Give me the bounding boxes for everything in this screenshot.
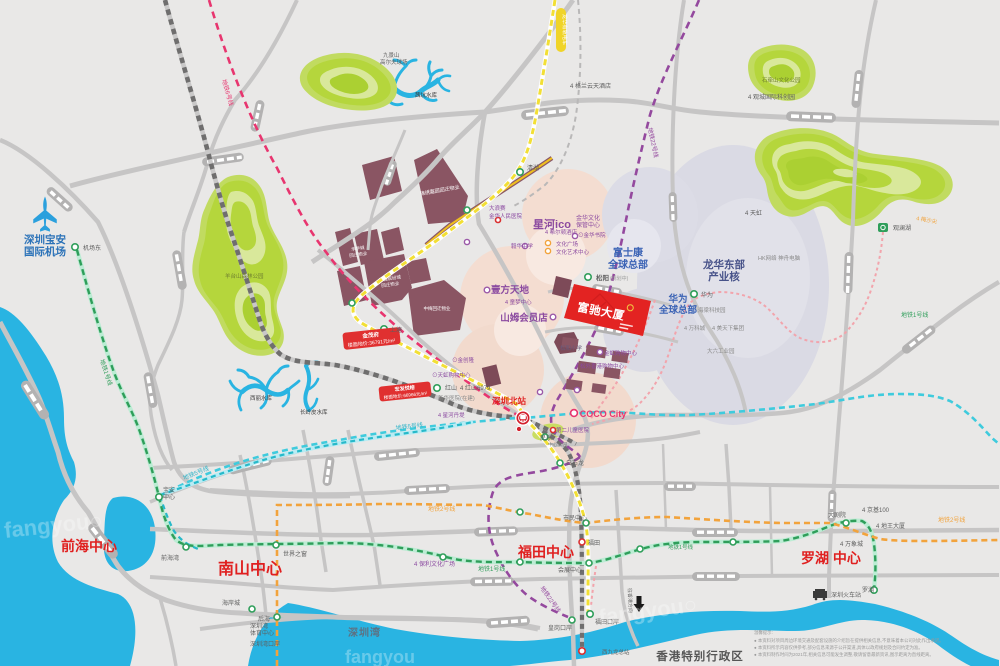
svg-text:4 美天下集团: 4 美天下集团 xyxy=(712,324,745,332)
svg-text:深圳火车站: 深圳火车站 xyxy=(831,591,861,599)
svg-text:南山中心: 南山中心 xyxy=(218,559,282,578)
svg-text:● 本资料所示内容仅供参考,部分信息来源于公开渠道,具体以政: ● 本资料所示内容仅供参考,部分信息来源于公开渠道,具体以政府规划及合同约定为准… xyxy=(754,644,923,651)
svg-text:深圳宝安: 深圳宝安 xyxy=(24,233,66,246)
svg-text:地铁2号线: 地铁2号线 xyxy=(938,516,965,524)
svg-text:深圳北站: 深圳北站 xyxy=(492,396,527,406)
svg-text:前海湾: 前海湾 xyxy=(161,554,179,562)
svg-text:民乐: 民乐 xyxy=(540,435,552,442)
svg-text:龙华东部: 龙华东部 xyxy=(702,258,745,271)
svg-text:九景山: 九景山 xyxy=(383,51,400,59)
svg-text:⊙金创隆: ⊙金创隆 xyxy=(452,356,475,364)
svg-text:地铁1号线: 地铁1号线 xyxy=(668,543,694,551)
svg-text:保管中心: 保管中心 xyxy=(576,221,600,229)
svg-text:福田中心: 福田中心 xyxy=(517,544,574,560)
svg-text:羊台山森林公园: 羊台山森林公园 xyxy=(225,272,264,280)
svg-text:国际机场: 国际机场 xyxy=(24,245,66,258)
svg-text:4 格兰云天酒店: 4 格兰云天酒店 xyxy=(570,82,611,90)
svg-text:⊙天虹购物中心: ⊙天虹购物中心 xyxy=(432,371,471,379)
svg-text:壹方天地: 壹方天地 xyxy=(491,284,530,296)
svg-text:观澜湖: 观澜湖 xyxy=(893,224,911,232)
svg-text:文化艺术中心: 文化艺术中心 xyxy=(556,248,590,256)
svg-text:金虹购物中心: 金虹购物中心 xyxy=(604,349,638,357)
svg-text:4 地王大厦: 4 地王大厦 xyxy=(876,522,905,530)
svg-text:白石龙: 白石龙 xyxy=(566,459,584,467)
svg-text:市民中心: 市民中心 xyxy=(563,514,587,522)
svg-text:前海中心: 前海中心 xyxy=(61,538,117,554)
svg-text:产业核: 产业核 xyxy=(708,270,740,283)
svg-text:海梁科技园: 海梁科技园 xyxy=(698,306,726,314)
svg-text:清湖: 清湖 xyxy=(527,164,539,172)
svg-text:福田: 福田 xyxy=(588,539,600,547)
svg-text:新华医院(在建): 新华医院(在建) xyxy=(438,394,475,402)
svg-text:大六工业园: 大六工业园 xyxy=(707,347,735,355)
svg-text:会展中心: 会展中心 xyxy=(558,566,582,574)
svg-text:松和小学: 松和小学 xyxy=(560,344,583,352)
svg-text:罗湖 中心: 罗湖 中心 xyxy=(801,550,861,566)
svg-text:4 保利文化广场: 4 保利文化广场 xyxy=(414,560,455,568)
svg-text:香港特别行政区: 香港特别行政区 xyxy=(655,649,744,663)
svg-text:文化广场: 文化广场 xyxy=(556,240,579,248)
svg-text:⊙金华书院: ⊙金华书院 xyxy=(578,231,606,239)
svg-text:松阳: 松阳 xyxy=(596,273,610,282)
svg-text:fangyou: fangyou xyxy=(345,647,415,666)
svg-text:COCO City: COCO City xyxy=(580,409,627,419)
svg-text:龙华有轨电车: 龙华有轨电车 xyxy=(561,14,569,45)
svg-text:4 京基100: 4 京基100 xyxy=(862,506,890,514)
svg-text:(规划中): (规划中) xyxy=(610,275,629,282)
svg-text:毅华中学: 毅华中学 xyxy=(511,242,534,250)
svg-text:高尔夫球场: 高尔夫球场 xyxy=(380,58,408,66)
svg-text:石牵山文化公园: 石牵山文化公园 xyxy=(762,76,801,84)
svg-text:深圳湾: 深圳湾 xyxy=(348,626,381,639)
svg-text:4 童梦中心: 4 童梦中心 xyxy=(505,298,532,306)
svg-text:● 本资料对项目周边环境交通及配套设施的介绍旨在提供相关信息: ● 本资料对项目周边环境交通及配套设施的介绍旨在提供相关信息,不意味着本公司对此… xyxy=(754,637,944,644)
svg-text:华为: 华为 xyxy=(701,291,713,299)
svg-text:海岸城: 海岸城 xyxy=(222,599,240,607)
svg-text:全球总部: 全球总部 xyxy=(658,304,698,316)
svg-text:4 星河丹堤: 4 星河丹堤 xyxy=(438,411,465,419)
svg-text:金华文化: 金华文化 xyxy=(576,214,600,222)
svg-text:温馨提示:: 温馨提示: xyxy=(754,629,773,636)
svg-text:星河ico: 星河ico xyxy=(533,217,571,231)
svg-text:上塘: 上塘 xyxy=(390,326,402,334)
svg-text:茜坑水库: 茜坑水库 xyxy=(415,91,438,99)
svg-text:4 万科城: 4 万科城 xyxy=(684,324,706,332)
svg-text:4 观城国际科创园: 4 观城国际科创园 xyxy=(748,93,795,101)
svg-text:金华人民医院: 金华人民医院 xyxy=(489,212,523,220)
svg-text:富士康: 富士康 xyxy=(613,246,644,259)
svg-text:4 希尔顿酒店: 4 希尔顿酒店 xyxy=(545,228,578,236)
svg-text:4 万象城: 4 万象城 xyxy=(840,540,863,548)
svg-text:长岭皮水库: 长岭皮水库 xyxy=(300,408,328,416)
svg-text:体育中心: 体育中心 xyxy=(250,629,274,637)
svg-text:红山: 红山 xyxy=(445,384,457,392)
svg-text:世界之窗: 世界之窗 xyxy=(283,550,307,558)
svg-text:松外香港购物中心: 松外香港购物中心 xyxy=(580,362,625,370)
svg-text:第二儿童医院: 第二儿童医院 xyxy=(556,426,590,434)
svg-text:中心: 中心 xyxy=(163,493,175,501)
svg-text:大剧院: 大剧院 xyxy=(828,511,846,519)
svg-text:HK网络 神舟电脑: HK网络 神舟电脑 xyxy=(758,254,801,262)
svg-text:4 天虹: 4 天虹 xyxy=(745,209,762,217)
svg-text:西丽水库: 西丽水库 xyxy=(250,394,273,402)
svg-text:深圳湾口岸: 深圳湾口岸 xyxy=(250,640,280,648)
svg-text:深圳湾: 深圳湾 xyxy=(250,622,268,630)
svg-text:宝安: 宝安 xyxy=(163,486,175,494)
svg-text:山姆会员店: 山姆会员店 xyxy=(500,312,548,324)
svg-text:后海: 后海 xyxy=(258,615,270,623)
svg-text:4 红山6979: 4 红山6979 xyxy=(460,384,491,392)
svg-text:地铁2号线: 地铁2号线 xyxy=(428,505,455,513)
svg-text:罗湖: 罗湖 xyxy=(862,586,874,594)
svg-text:西九龙总站: 西九龙总站 xyxy=(602,648,630,656)
svg-text:华为: 华为 xyxy=(668,293,687,305)
svg-text:● 本资料制作时间为2021年,相关信息可能发生调整,敬请留: ● 本资料制作时间为2021年,相关信息可能发生调整,敬请留意最新资讯,图示距离… xyxy=(754,651,934,658)
svg-text:皇岗口岸: 皇岗口岸 xyxy=(548,624,572,632)
svg-text:机场东: 机场东 xyxy=(83,244,101,252)
svg-text:地铁1号线: 地铁1号线 xyxy=(901,311,928,319)
svg-text:地铁1号线: 地铁1号线 xyxy=(478,565,505,573)
svg-text:中心公园: 中心公园 xyxy=(548,441,567,448)
svg-text:大浪赛: 大浪赛 xyxy=(489,204,506,212)
svg-text:全球总部: 全球总部 xyxy=(607,258,648,271)
svg-text:中梅回迁物业: 中梅回迁物业 xyxy=(424,305,451,312)
